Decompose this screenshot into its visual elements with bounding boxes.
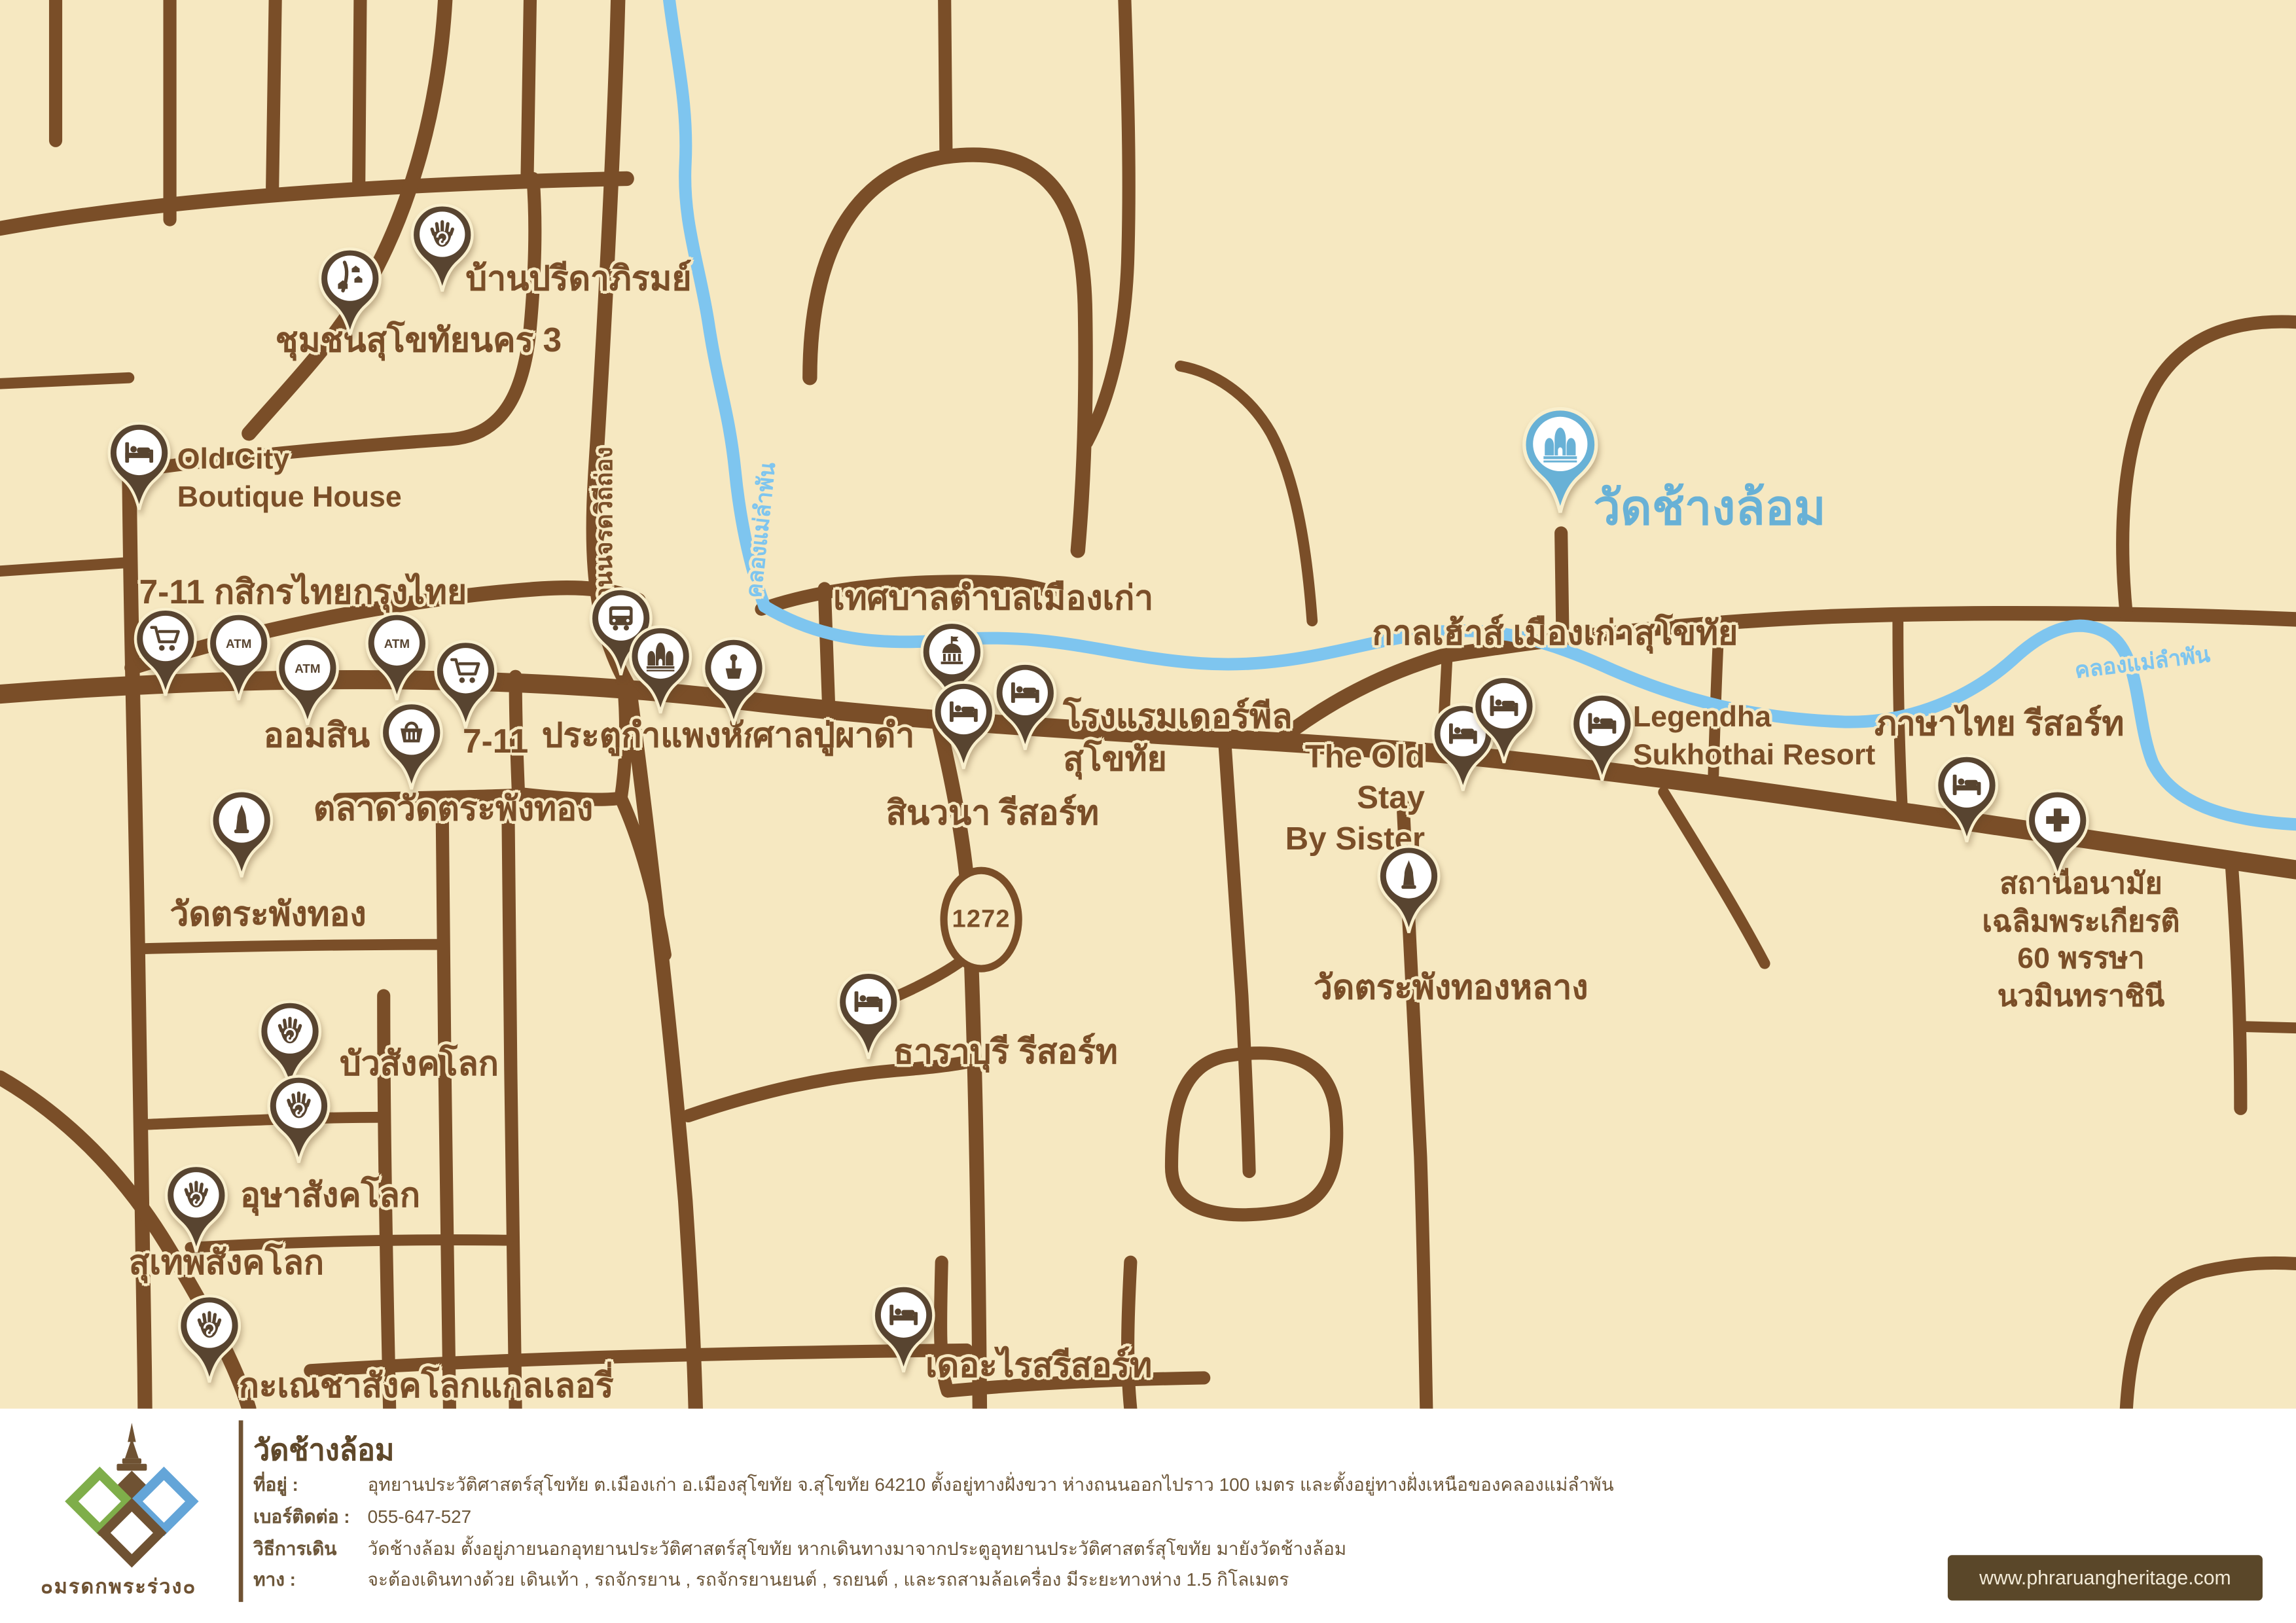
- label-talat-wat-traphang-thong: ตลาดวัดตระพังทอง: [314, 788, 593, 831]
- pin-atm-2[interactable]: [276, 637, 340, 728]
- label-old-city-boutique-house: Old City Boutique House: [177, 442, 402, 518]
- label-usa-sangkhalok: อุษาสังคโลก: [240, 1174, 420, 1217]
- pin-wat-chang-lom[interactable]: [1521, 407, 1598, 516]
- phone-value: 055-647-527: [368, 1503, 1938, 1533]
- label-the-old-stay: The Old Stay By Sister: [1257, 736, 1425, 860]
- pin-kanesha-sangkhalok[interactable]: [177, 1294, 242, 1385]
- pin-pratu-kamphaeng-hak[interactable]: [628, 625, 692, 716]
- panel-title: วัดช้างล้อม: [253, 1426, 394, 1473]
- pin-suthep-sangkhalok[interactable]: [164, 1164, 228, 1255]
- logo-text: ๐มรดกพระร่วง๐: [9, 1570, 228, 1602]
- panel-divider: [239, 1420, 243, 1601]
- phone-row: เบอร์ติดต่อ : 055-647-527: [253, 1503, 1937, 1533]
- panel-rows: ที่อยู่ : อุทยานประวัติศาสตร์สุโขทัย ต.เ…: [253, 1470, 1937, 1597]
- atm-icon: [384, 637, 410, 651]
- label-wat-chang-lom: วัดช้างล้อม: [1593, 477, 1825, 539]
- pin-sinvana-resort[interactable]: [931, 681, 996, 772]
- label-sinvana-resort: สินวนา รีสอร์ท: [886, 792, 1099, 835]
- label-thanon-jarod-withi-thong: ถนนจรดวิถีถ่อง: [591, 447, 621, 602]
- pin-legendha-resort[interactable]: [1570, 692, 1634, 783]
- address-label: ที่อยู่ :: [253, 1470, 365, 1501]
- pin-guesthouse-mueang-kao[interactable]: [1472, 675, 1536, 766]
- pin-atm-1[interactable]: [206, 612, 270, 703]
- pin-tharaburi-resort[interactable]: [836, 971, 901, 1061]
- label-wat-traphang-thong: วัดตระพังทอง: [170, 893, 367, 936]
- pin-atm-krungthai[interactable]: [365, 612, 429, 703]
- pin-health-station[interactable]: [2025, 789, 2089, 880]
- pin-pasathai-resort[interactable]: [1935, 754, 1999, 845]
- label-san-pu-pha-dam: ศาลปู่ผาดำ: [753, 715, 914, 758]
- label-health-station: สถานีอนามัย เฉลิมพระเกียรติ 60 พรรษา นวม…: [1965, 867, 2197, 1017]
- label-pasathai-resort: ภาษาไทย รีสอร์ท: [1874, 703, 2124, 746]
- atm-icon: [226, 637, 251, 651]
- pin-ban-preedaphirom[interactable]: [410, 204, 475, 294]
- map-page: บ้านปรีดาภิรมย์ชุมชนสุโขทัยนคร 3Old City…: [0, 0, 2296, 1623]
- label-ban-preedaphirom: บ้านปรีดาภิรมย์: [466, 258, 692, 301]
- pin-wat-traphang-thong-lang[interactable]: [1376, 845, 1441, 936]
- label-kala-house: กาลเฮ้าส์ เมืองเก่าสุโขทัย: [1372, 612, 1738, 655]
- label-tharaburi-resort: ธาราบุรี รีสอร์ท: [893, 1031, 1118, 1074]
- map-canvas[interactable]: บ้านปรีดาภิรมย์ชุมชนสุโขทัยนคร 3Old City…: [0, 0, 2296, 1408]
- pin-old-city-boutique-house[interactable]: [107, 421, 171, 512]
- label-legendha: Legendha Sukhothai Resort: [1633, 700, 1875, 776]
- address-value: อุทยานประวัติศาสตร์สุโขทัย ต.เมืองเก่า อ…: [368, 1470, 1938, 1501]
- info-panel: ๐มรดกพระร่วง๐ วัดช้างล้อม ที่อยู่ : อุทย…: [0, 1408, 2296, 1623]
- pin-7-11-kasikorn[interactable]: [134, 608, 198, 699]
- pin-san-pu-pha-dam[interactable]: [702, 637, 766, 728]
- directions-value: วัดช้างล้อม ตั้งอยู่ภายนอกอุทยานประวัติศ…: [368, 1535, 1938, 1596]
- label-kanesha-sangkhalok-gallery: กะเณชาสังคโลกแกลเลอรี่: [239, 1364, 614, 1408]
- label-krungthai: กรุงไทย: [353, 571, 467, 615]
- pin-wat-traphang-thong[interactable]: [209, 789, 274, 880]
- label-the-rice-resort: เดอะไรสรีสอร์ท: [925, 1344, 1152, 1387]
- pin-aomsin-market[interactable]: [380, 702, 444, 793]
- pin-the-rice-resort[interactable]: [871, 1284, 935, 1375]
- pin-der-peel-hotel[interactable]: [993, 662, 1057, 753]
- website-link[interactable]: www.phraruangheritage.com: [1948, 1555, 2263, 1600]
- phraruang-heritage-logo: [29, 1418, 234, 1578]
- label-wat-traphang-thong-lang: วัดตระพังทองหลาง: [1314, 967, 1588, 1010]
- directions-row: วิธีการเดินทาง : วัดช้างล้อม ตั้งอยู่ภาย…: [253, 1535, 1937, 1596]
- address-row: ที่อยู่ : อุทยานประวัติศาสตร์สุโขทัย ต.เ…: [253, 1470, 1937, 1501]
- directions-label: วิธีการเดินทาง :: [253, 1535, 365, 1596]
- label-tesaban-tambon-mueang-kao: เทศบาลตำบลเมืองเก่า: [833, 577, 1153, 620]
- atm-icon: [295, 662, 320, 675]
- label-bua-sangkhalok: บัวสังคโลก: [340, 1043, 499, 1086]
- phone-label: เบอร์ติดต่อ :: [253, 1503, 365, 1533]
- route-1272-shield: 1272: [940, 867, 1022, 972]
- pin-chumchon-sukhothai-nakhon-3[interactable]: [318, 247, 382, 338]
- pin-usa-sangkhalok[interactable]: [266, 1075, 331, 1166]
